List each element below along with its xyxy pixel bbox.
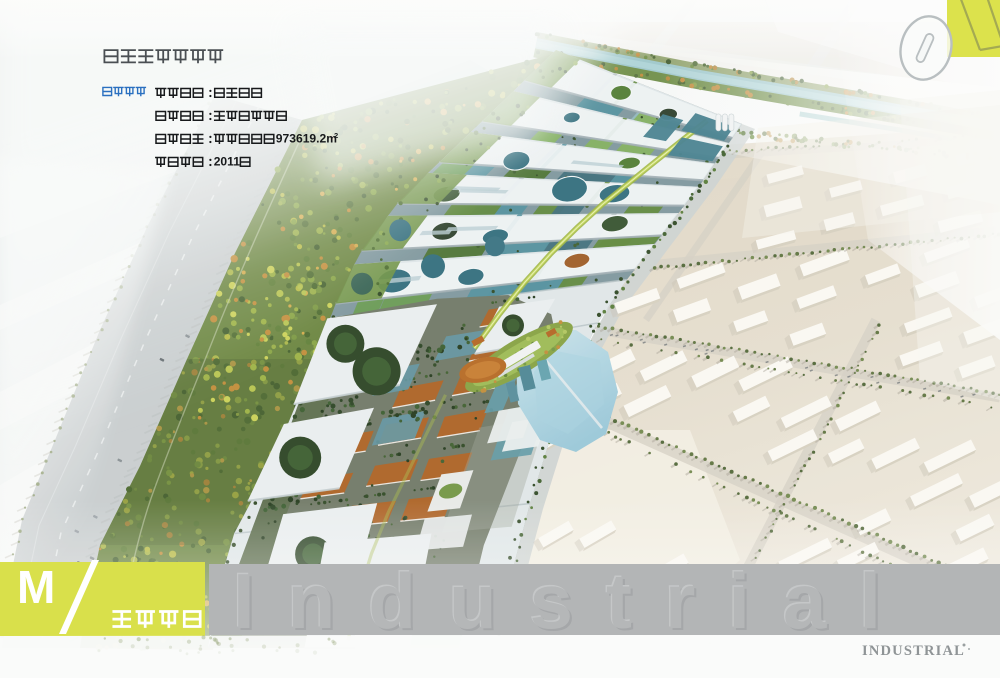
svg-text:INDUSTRIAL: INDUSTRIAL <box>862 643 965 659</box>
svg-text:2011: 2011 <box>214 155 241 169</box>
svg-text:2: 2 <box>334 131 338 140</box>
svg-text:M: M <box>17 561 55 613</box>
svg-text:Industrial: Industrial <box>233 557 914 645</box>
svg-text:973619.2m: 973619.2m <box>276 132 337 146</box>
